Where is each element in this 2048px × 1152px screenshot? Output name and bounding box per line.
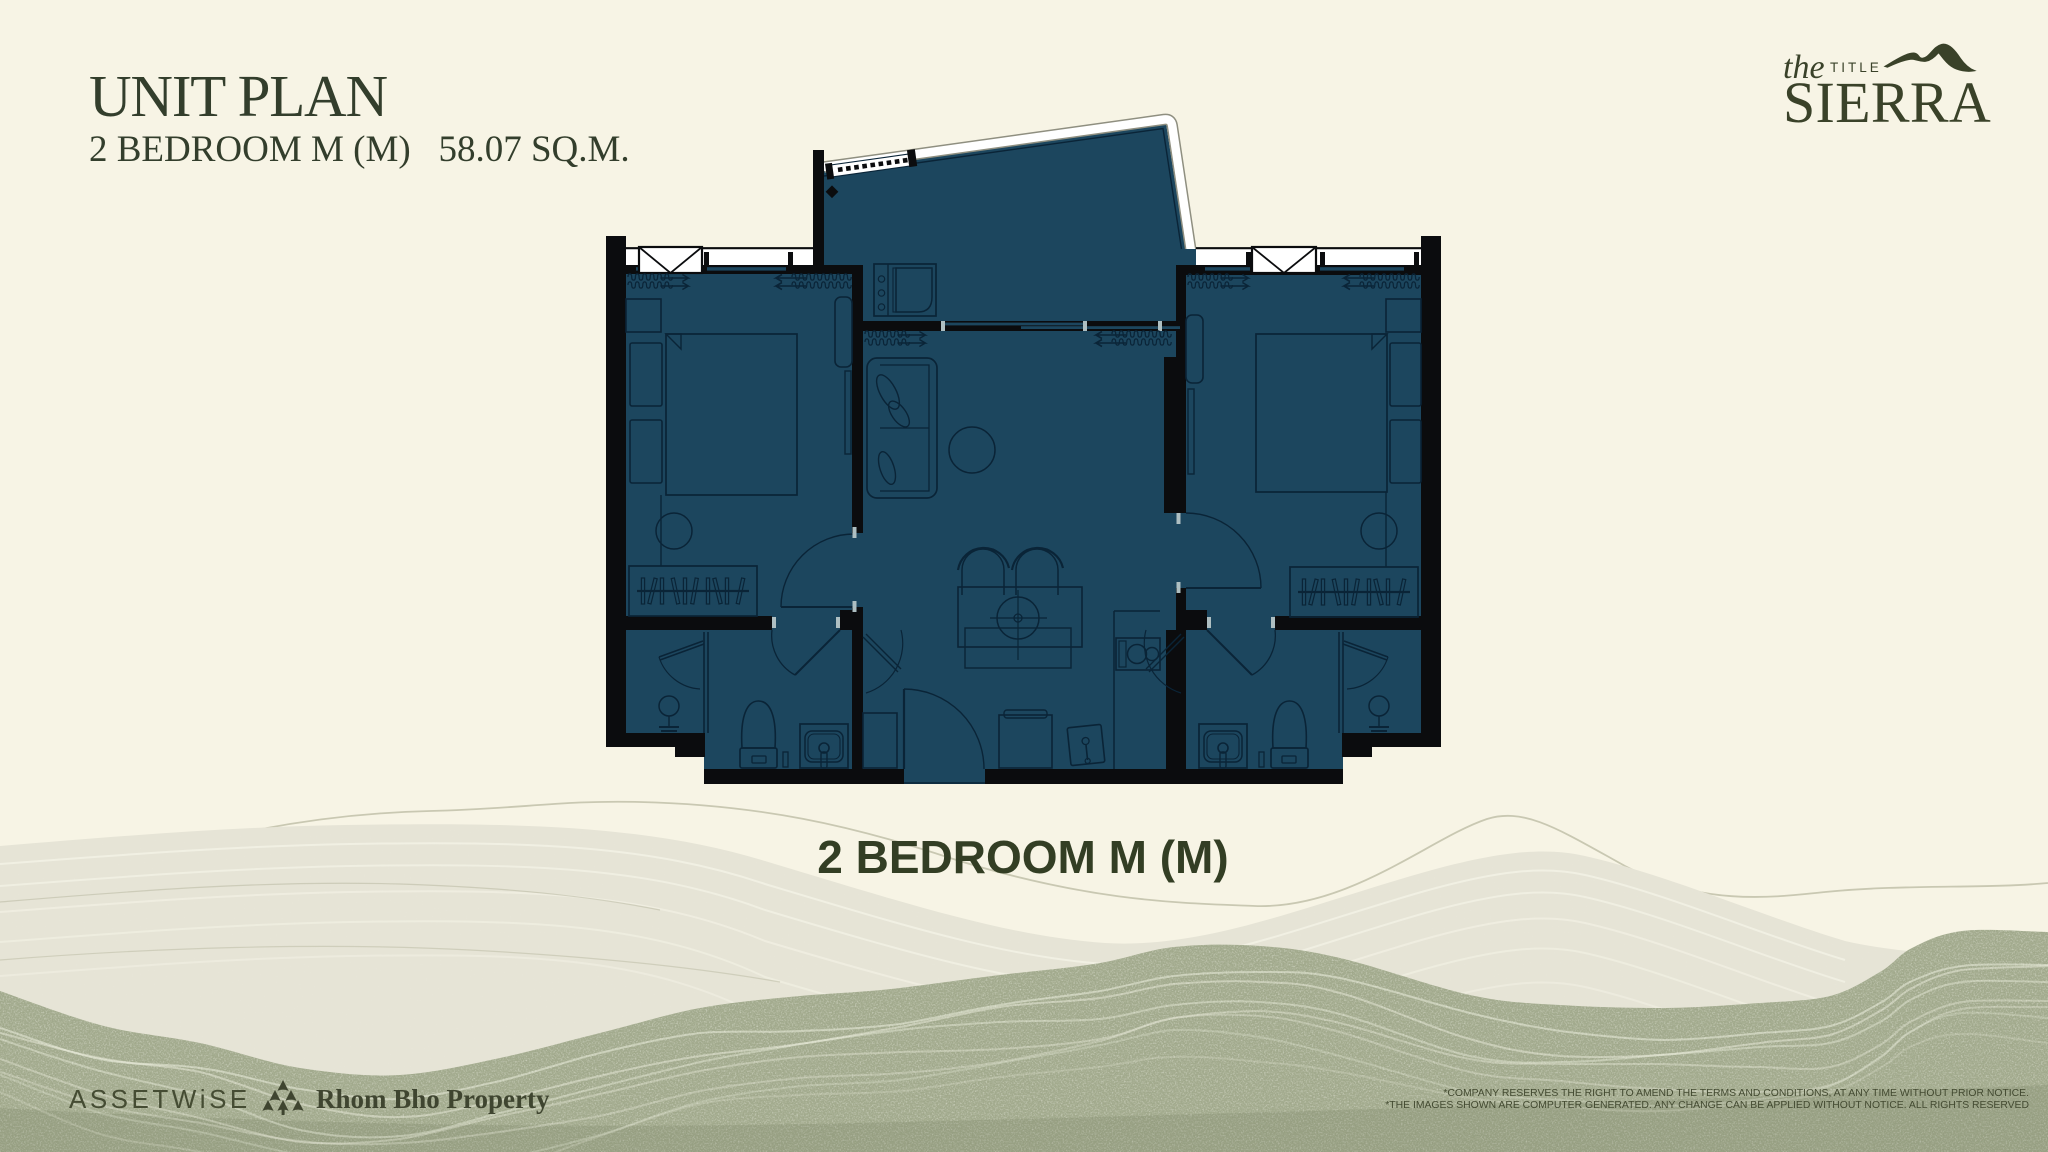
svg-text:Rhom Bho Property: Rhom Bho Property [316, 1084, 550, 1114]
svg-text:*COMPANY RESERVES THE RIGHT TO: *COMPANY RESERVES THE RIGHT TO AMEND THE… [1443, 1088, 2029, 1099]
svg-text:*THE IMAGES SHOWN ARE COMPUTER: *THE IMAGES SHOWN ARE COMPUTER GENERATED… [1385, 1100, 2029, 1111]
svg-text:SIERRA: SIERRA [1783, 70, 1991, 135]
svg-text:UNIT PLAN: UNIT PLAN [89, 63, 387, 129]
svg-text:ASSETWiSE: ASSETWiSE [69, 1084, 251, 1114]
svg-text:2 BEDROOM M (M) 58.07 SQ.M.: 2 BEDROOM M (M) 58.07 SQ.M. [89, 129, 630, 170]
svg-text:2 BEDROOM M (M): 2 BEDROOM M (M) [817, 831, 1228, 883]
